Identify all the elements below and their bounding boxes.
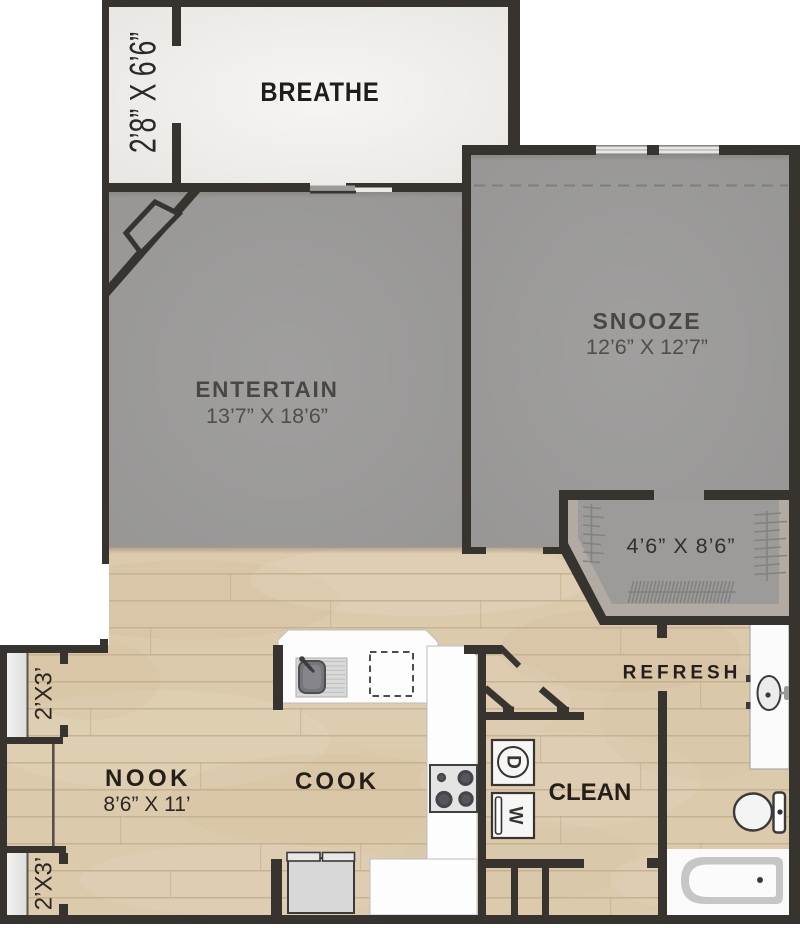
svg-text:ENTERTAIN: ENTERTAIN [195, 377, 338, 402]
svg-text:2’X3’: 2’X3’ [31, 667, 58, 720]
svg-text:SNOOZE: SNOOZE [592, 308, 701, 334]
svg-text:BREATHE: BREATHE [260, 78, 379, 108]
svg-text:D: D [503, 755, 524, 769]
svg-text:COOK: COOK [295, 768, 379, 795]
svg-text:CLEAN: CLEAN [549, 779, 632, 806]
svg-text:13’7” X 18’6”: 13’7” X 18’6” [206, 404, 328, 428]
svg-text:NOOK: NOOK [105, 765, 191, 792]
svg-text:4’6” X 8’6”: 4’6” X 8’6” [627, 534, 736, 558]
svg-text:REFRESH: REFRESH [623, 663, 742, 684]
svg-text:8’6” X 11’: 8’6” X 11’ [103, 793, 190, 816]
svg-text:12’6” X 12’7”: 12’6” X 12’7” [586, 335, 708, 359]
svg-text:2’X3’: 2’X3’ [31, 857, 58, 910]
svg-text:2’8” X 6’6”: 2’8” X 6’6” [122, 32, 163, 153]
svg-text:W: W [505, 807, 526, 825]
